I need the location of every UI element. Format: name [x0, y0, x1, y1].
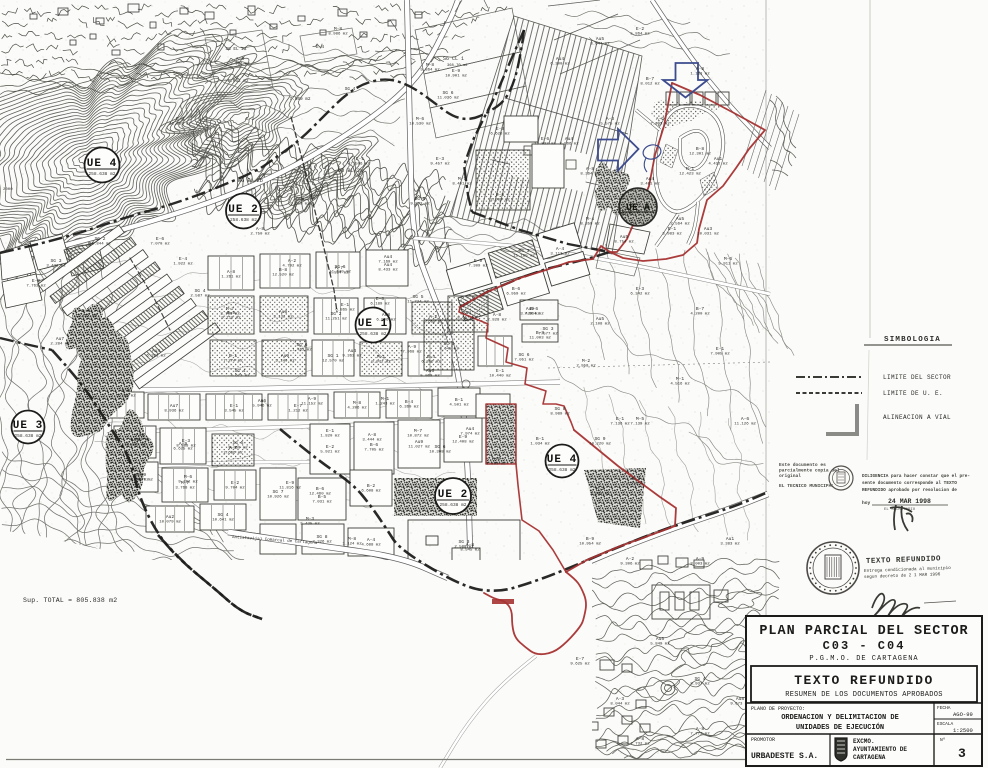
svg-text:7.596 m2: 7.596 m2: [350, 163, 370, 167]
svg-text:SG 6: SG 6: [518, 352, 529, 358]
svg-text:Au4: Au4: [348, 348, 357, 354]
svg-text:258.638 m2: 258.638 m2: [14, 433, 41, 439]
svg-text:8.754 m2: 8.754 m2: [614, 241, 634, 245]
svg-text:E-7: E-7: [576, 656, 585, 662]
svg-text:9.910 m2: 9.910 m2: [290, 203, 310, 207]
svg-text:3.423 m2: 3.423 m2: [46, 265, 66, 269]
svg-text:SG 4: SG 4: [194, 288, 205, 294]
svg-text:11.724 m2: 11.724 m2: [407, 301, 429, 305]
svg-text:1.124 m2: 1.124 m2: [342, 543, 362, 547]
svg-text:SG 5: SG 5: [443, 341, 454, 347]
svg-text:6.959 m2: 6.959 m2: [506, 293, 526, 297]
svg-text:6.342 m2: 6.342 m2: [630, 293, 650, 297]
svg-text:258.638 m2: 258.638 m2: [88, 171, 115, 177]
svg-text:M-5: M-5: [636, 416, 645, 422]
svg-text:2.588 m2: 2.588 m2: [454, 546, 474, 550]
svg-text:10.031 m2: 10.031 m2: [697, 233, 719, 237]
svg-text:Sup. TOTAL = 805.838 m2: Sup. TOTAL = 805.838 m2: [23, 597, 117, 604]
svg-text:FECHA: FECHA: [937, 705, 951, 711]
svg-text:3.383 m2: 3.383 m2: [720, 543, 740, 547]
svg-text:11.152 m2: 11.152 m2: [301, 403, 323, 407]
svg-text:E-2: E-2: [32, 278, 41, 284]
svg-text:M-7: M-7: [414, 428, 423, 434]
svg-text:B-9: B-9: [227, 310, 236, 316]
svg-text:SG 3: SG 3: [518, 248, 529, 254]
svg-text:11.251 m2: 11.251 m2: [325, 318, 347, 322]
svg-text:6.360 m2: 6.360 m2: [399, 406, 419, 410]
svg-text:E-1: E-1: [230, 403, 239, 409]
svg-text:E-1: E-1: [356, 156, 365, 162]
svg-text:A-2: A-2: [288, 258, 297, 264]
svg-text:Au9: Au9: [281, 353, 290, 359]
svg-text:E-1: E-1: [496, 368, 505, 374]
svg-text:SG 4: SG 4: [345, 87, 356, 92]
svg-text:7.309 m2: 7.309 m2: [468, 265, 488, 269]
svg-text:2.564 m2: 2.564 m2: [670, 223, 690, 227]
svg-text:SG EL 2a: SG EL 2a: [225, 47, 246, 52]
svg-text:9.704 m2: 9.704 m2: [225, 487, 245, 491]
svg-text:368.70 m2: 368.70 m2: [447, 64, 468, 68]
svg-text:3.545 m2: 3.545 m2: [224, 410, 244, 414]
svg-text:A-5: A-5: [135, 472, 144, 478]
svg-text:SG 6: SG 6: [296, 342, 307, 348]
svg-text:SG 4: SG 4: [234, 368, 245, 374]
svg-text:258.638 m2: 258.638 m2: [439, 502, 466, 508]
svg-text:Nº: Nº: [940, 737, 946, 743]
svg-text:URBADESTE S.A.: URBADESTE S.A.: [751, 752, 818, 761]
svg-text:A-4: A-4: [556, 246, 565, 252]
svg-text:B-2: B-2: [367, 483, 376, 489]
svg-text:4.206 m2: 4.206 m2: [347, 407, 367, 411]
svg-text:M-6: M-6: [416, 116, 425, 122]
svg-text:Au7: Au7: [56, 336, 65, 342]
svg-text:10.220 m2: 10.220 m2: [589, 443, 611, 447]
svg-text:Au4: Au4: [152, 348, 161, 354]
svg-text:Au8: Au8: [279, 309, 288, 315]
svg-text:SG 6: SG 6: [434, 444, 445, 450]
svg-text:12.301 m2: 12.301 m2: [689, 153, 711, 157]
svg-text:11.162 m2: 11.162 m2: [75, 315, 97, 319]
svg-text:6.628 m2: 6.628 m2: [490, 133, 510, 137]
svg-text:4.200 m2: 4.200 m2: [690, 313, 710, 317]
svg-text:PROMOTOR: PROMOTOR: [751, 737, 775, 743]
svg-text:UE 2: UE 2: [438, 489, 468, 501]
svg-text:B-8: B-8: [696, 146, 705, 152]
svg-text:8.359 m2: 8.359 m2: [580, 223, 600, 227]
svg-text:7.051 m2: 7.051 m2: [514, 359, 534, 363]
svg-text:Este documento es: Este documento es: [779, 462, 826, 468]
svg-text:SG 3: SG 3: [458, 539, 469, 545]
svg-text:E-1: E-1: [716, 346, 725, 352]
svg-text:1.243 m2: 1.243 m2: [375, 403, 395, 407]
svg-text:Au4: Au4: [384, 254, 393, 260]
svg-text:UE 2: UE 2: [228, 204, 258, 216]
svg-text:E-4: E-4: [316, 45, 324, 50]
svg-text:Au4: Au4: [565, 136, 574, 142]
svg-text:2.958 m2: 2.958 m2: [576, 365, 596, 369]
svg-text:M-8: M-8: [334, 26, 343, 32]
svg-text:A-8: A-8: [368, 432, 377, 438]
svg-text:A-8: A-8: [492, 456, 501, 462]
svg-text:Au7: Au7: [170, 403, 179, 409]
svg-text:12.520 m2: 12.520 m2: [272, 274, 294, 278]
svg-text:7.093 m2: 7.093 m2: [650, 123, 670, 127]
svg-text:E-4: E-4: [179, 256, 188, 262]
svg-text:3.481 m2: 3.481 m2: [640, 183, 660, 187]
svg-text:sente documento corresponde al: sente documento corresponde al TEXTO: [862, 481, 957, 486]
svg-text:3.645 m2: 3.645 m2: [439, 348, 459, 352]
svg-text:7.274 m2: 7.274 m2: [223, 360, 243, 364]
svg-text:10.641 m2: 10.641 m2: [212, 519, 234, 523]
svg-text:2.284 m2: 2.284 m2: [50, 343, 70, 347]
svg-text:8.983 m2: 8.983 m2: [662, 233, 682, 237]
svg-text:9.118 m2: 9.118 m2: [221, 317, 241, 321]
svg-text:6.366 m2: 6.366 m2: [421, 361, 441, 365]
svg-text:Au5: Au5: [596, 316, 605, 322]
svg-text:M-2: M-2: [596, 486, 605, 492]
svg-text:4.501 m2: 4.501 m2: [449, 404, 469, 408]
svg-text:B-8: B-8: [536, 330, 545, 336]
svg-text:hoy: hoy: [862, 500, 871, 506]
svg-text:8.936 m2: 8.936 m2: [164, 410, 184, 414]
svg-text:5.068 m2: 5.068 m2: [420, 375, 440, 379]
svg-text:5.849 m2: 5.849 m2: [650, 643, 670, 647]
svg-text:1.034 m2: 1.034 m2: [530, 443, 550, 447]
svg-text:E-2: E-2: [231, 480, 240, 486]
svg-text:24 MAR 1998: 24 MAR 1998: [888, 498, 931, 505]
svg-text:10.954 m2: 10.954 m2: [579, 543, 601, 547]
svg-text:Au6: Au6: [258, 398, 267, 404]
svg-text:B-6: B-6: [316, 486, 325, 492]
svg-text:E-7: E-7: [294, 403, 303, 409]
svg-text:5.972 m2: 5.972 m2: [371, 361, 391, 365]
svg-text:3: 3: [958, 746, 966, 761]
svg-text:2.703 m2: 2.703 m2: [614, 213, 634, 217]
svg-text:B-6: B-6: [530, 306, 539, 312]
svg-text:A-8: A-8: [636, 736, 645, 742]
svg-text:7.139 m2: 7.139 m2: [630, 423, 650, 427]
svg-text:6.323 m2: 6.323 m2: [146, 355, 166, 359]
svg-text:8.044 m2: 8.044 m2: [610, 703, 630, 707]
svg-text:B-5: B-5: [318, 494, 327, 500]
svg-text:B-1: B-1: [536, 436, 545, 442]
svg-text:9.306 m2: 9.306 m2: [620, 563, 640, 567]
svg-text:Au1: Au1: [131, 437, 140, 443]
svg-text:6.189 m2: 6.189 m2: [370, 303, 390, 307]
svg-text:11.844 m2: 11.844 m2: [89, 243, 111, 247]
svg-text:SG 2: SG 2: [94, 236, 105, 242]
svg-text:2.244 m2: 2.244 m2: [129, 479, 149, 483]
svg-text:7.070 m2: 7.070 m2: [150, 243, 170, 247]
svg-text:Au2: Au2: [166, 514, 175, 520]
svg-text:M-7: M-7: [458, 176, 467, 182]
svg-text:Au4: Au4: [384, 262, 393, 268]
svg-text:B-4: B-4: [405, 399, 414, 405]
svg-text:M-8: M-8: [426, 62, 435, 68]
svg-text:A-9: A-9: [308, 396, 317, 402]
svg-text:2.554 m2: 2.554 m2: [329, 272, 349, 276]
svg-text:5.946 m2: 5.946 m2: [252, 405, 272, 409]
svg-text:RESUMEN DE LOS DOCUMENTOS APRO: RESUMEN DE LOS DOCUMENTOS APROBADOS: [785, 691, 943, 699]
svg-text:5.425 m2: 5.425 m2: [300, 523, 320, 527]
svg-text:9.973 m2: 9.973 m2: [410, 203, 430, 207]
svg-text:3.967 m2: 3.967 m2: [230, 63, 250, 67]
svg-text:Au8: Au8: [382, 312, 391, 318]
svg-text:8.012 m2: 8.012 m2: [640, 83, 660, 87]
svg-text:11.126 m2: 11.126 m2: [734, 423, 756, 427]
svg-text:SG 7: SG 7: [272, 489, 283, 495]
svg-text:Au4: Au4: [466, 426, 475, 432]
svg-text:REFUNDIDO aprobado por resoluc: REFUNDIDO aprobado por resolucion de: [862, 488, 957, 493]
svg-text:8.989 m2: 8.989 m2: [550, 413, 570, 417]
svg-text:11.185 m2: 11.185 m2: [513, 255, 535, 259]
svg-text:7.763 m2: 7.763 m2: [26, 285, 46, 289]
svg-text:SG 2: SG 2: [330, 311, 341, 317]
svg-text:2.732 m2: 2.732 m2: [630, 743, 650, 747]
svg-text:EL TECNICO MUNICIPAL: EL TECNICO MUNICIPAL: [779, 483, 834, 489]
svg-text:11.003 m2: 11.003 m2: [529, 337, 551, 341]
svg-text:2.566 m2: 2.566 m2: [559, 143, 579, 147]
svg-text:AGO-99: AGO-99: [953, 711, 973, 718]
svg-text:2.909 m2: 2.909 m2: [490, 199, 510, 203]
svg-text:5.669 m2: 5.669 m2: [423, 321, 443, 325]
svg-text:3.140 m2: 3.140 m2: [275, 360, 295, 364]
svg-text:EXCMO.: EXCMO.: [853, 738, 875, 745]
svg-text:6.300 m2: 6.300 m2: [550, 63, 570, 67]
svg-text:ALINEACION A VIAL: ALINEACION A VIAL: [883, 414, 951, 421]
svg-text:10.020 m2: 10.020 m2: [124, 444, 146, 448]
svg-text:SG 5: SG 5: [412, 294, 423, 300]
svg-text:8.657 m2: 8.657 m2: [457, 317, 477, 321]
svg-text:3.113 m2: 3.113 m2: [550, 253, 570, 257]
svg-text:Au4: Au4: [556, 56, 565, 62]
svg-text:A-8: A-8: [696, 66, 705, 72]
svg-text:3.444 m2: 3.444 m2: [362, 439, 382, 443]
svg-text:SG 6: SG 6: [442, 90, 453, 96]
svg-text:A-2: A-2: [626, 556, 635, 562]
svg-text:SG 4: SG 4: [217, 512, 228, 518]
svg-text:A-6: A-6: [620, 206, 629, 212]
svg-text:P.G.M.O. DE CARTAGENA: P.G.M.O. DE CARTAGENA: [809, 655, 918, 663]
svg-text:8.644 m2: 8.644 m2: [590, 43, 610, 47]
svg-text:E-8: E-8: [496, 192, 505, 198]
svg-text:Au8: Au8: [736, 696, 745, 702]
svg-text:C03 - C04: C03 - C04: [823, 639, 906, 653]
svg-text:6.625 m2: 6.625 m2: [173, 448, 193, 452]
svg-text:B-7: B-7: [696, 306, 705, 312]
svg-text:4.688 m2: 4.688 m2: [361, 544, 381, 548]
svg-text:A-8: A-8: [493, 312, 502, 318]
svg-text:E-3: E-3: [436, 156, 445, 162]
svg-text:A-7: A-7: [335, 265, 344, 271]
svg-text:A-9: A-9: [696, 556, 705, 562]
svg-text:8.364 m2: 8.364 m2: [580, 173, 600, 177]
svg-text:E-8: E-8: [296, 196, 305, 202]
svg-text:E-1: E-1: [341, 302, 350, 308]
svg-text:11.036 m2: 11.036 m2: [437, 97, 459, 101]
svg-text:12.832 m2: 12.832 m2: [534, 143, 556, 147]
svg-text:Au5: Au5: [656, 636, 665, 642]
svg-text:1.922 m2: 1.922 m2: [173, 263, 193, 267]
svg-text:B-7: B-7: [646, 76, 655, 82]
svg-text:7.968 m2: 7.968 m2: [402, 351, 422, 355]
svg-text:UNIDADES DE EJECUCIÓN: UNIDADES DE EJECUCIÓN: [796, 722, 884, 732]
svg-text:Au9: Au9: [415, 439, 424, 445]
svg-text:Au5: Au5: [676, 216, 685, 222]
svg-text:2.333 m2: 2.333 m2: [590, 493, 610, 497]
svg-text:A-2: A-2: [656, 116, 665, 122]
svg-text:5.864 m2: 5.864 m2: [420, 69, 440, 73]
svg-text:7.031 m2: 7.031 m2: [312, 501, 332, 505]
svg-text:A-8: A-8: [256, 226, 265, 232]
svg-text:7.964 m2: 7.964 m2: [524, 313, 544, 317]
svg-text:E-2: E-2: [636, 26, 645, 32]
svg-text:E-8: E-8: [376, 296, 385, 302]
svg-text:10.079 m2: 10.079 m2: [159, 521, 181, 525]
svg-text:1.212 m2: 1.212 m2: [288, 410, 308, 414]
svg-text:4.432 m2: 4.432 m2: [708, 163, 728, 167]
svg-text:9.625 m2: 9.625 m2: [570, 663, 590, 667]
svg-text:7.772 m2: 7.772 m2: [690, 733, 710, 737]
svg-text:M-1: M-1: [686, 166, 695, 172]
svg-text:E-1: E-1: [668, 226, 677, 232]
svg-text:2.750 m2: 2.750 m2: [250, 233, 270, 237]
svg-text:8.401 m2: 8.401 m2: [452, 183, 472, 187]
svg-text:E-3: E-3: [636, 286, 645, 292]
svg-text:12.408 m2: 12.408 m2: [452, 441, 474, 445]
svg-text:AYUNTAMIENTO DE: AYUNTAMIENTO DE: [853, 746, 907, 753]
svg-text:258.638 m2: 258.638 m2: [548, 467, 575, 473]
svg-text:3.768 m2: 3.768 m2: [175, 487, 195, 491]
svg-text:A-6: A-6: [741, 416, 750, 422]
svg-text:Au6: Au6: [426, 368, 435, 374]
svg-text:B-3: B-3: [632, 476, 641, 482]
svg-text:A-8: A-8: [696, 726, 705, 732]
svg-text:E-2: E-2: [122, 388, 131, 394]
svg-text:1:2500: 1:2500: [953, 727, 973, 734]
svg-text:A-9: A-9: [408, 344, 417, 350]
svg-text:E-1: E-1: [326, 428, 335, 434]
svg-text:B-4: B-4: [176, 116, 185, 122]
svg-text:M-2: M-2: [582, 358, 591, 364]
svg-text:Au1: Au1: [714, 156, 723, 162]
svg-text:1.820 m2: 1.820 m2: [320, 435, 340, 439]
svg-text:258.638 m2: 258.638 m2: [359, 331, 386, 337]
svg-text:B-6: B-6: [370, 442, 379, 448]
svg-text:UE 3: UE 3: [13, 420, 43, 432]
svg-text:ESCALA: ESCALA: [937, 721, 954, 727]
svg-text:11.027 m2: 11.027 m2: [408, 446, 430, 450]
svg-text:E-9: E-9: [474, 258, 483, 264]
svg-text:SG 3: SG 3: [542, 326, 553, 332]
svg-text:B-8: B-8: [279, 267, 288, 273]
svg-text:7.136 m2: 7.136 m2: [610, 423, 630, 427]
svg-text:A-9: A-9: [179, 441, 188, 447]
svg-text:2.587 m2: 2.587 m2: [190, 295, 210, 299]
svg-text:7.705 m2: 7.705 m2: [364, 449, 384, 453]
svg-text:2.686 m2: 2.686 m2: [223, 452, 243, 456]
svg-text:E-2: E-2: [326, 444, 335, 450]
svg-text:M-6: M-6: [724, 256, 733, 262]
svg-text:A-3: A-3: [616, 696, 625, 702]
svg-text:5.911 m2: 5.911 m2: [718, 263, 738, 267]
svg-text:7.905 m2: 7.905 m2: [710, 353, 730, 357]
svg-text:Au1: Au1: [726, 536, 735, 542]
svg-text:LIMITE DE U. E.: LIMITE DE U. E.: [883, 390, 943, 397]
svg-text:M-6: M-6: [184, 474, 193, 480]
svg-text:10.440 m2: 10.440 m2: [489, 375, 511, 379]
svg-text:10.872 m2: 10.872 m2: [407, 435, 429, 439]
svg-text:PLAN PARCIAL DEL SECTOR: PLAN PARCIAL DEL SECTOR: [759, 624, 968, 639]
svg-text:ORDENACION Y DELIMITACION DE: ORDENACION Y DELIMITACION DE: [781, 714, 899, 722]
svg-text:8.986 m2: 8.986 m2: [328, 33, 348, 37]
svg-text:B-9: B-9: [586, 536, 595, 542]
svg-text:B-1: B-1: [455, 397, 464, 403]
svg-text:SG 1: SG 1: [327, 353, 338, 359]
svg-text:S6 CL 1: S6 CL 1: [443, 56, 464, 62]
svg-text:PLANO DE PROYECTO:: PLANO DE PROYECTO:: [751, 706, 805, 712]
svg-text:M-1: M-1: [676, 376, 685, 382]
svg-text:3.132 m2: 3.132 m2: [273, 316, 293, 320]
svg-text:258.638 m2: 258.638 m2: [230, 217, 257, 223]
svg-text:1.163 m2: 1.163 m2: [690, 73, 710, 77]
svg-text:B-6: B-6: [82, 308, 91, 314]
svg-text:E-9: E-9: [496, 126, 505, 132]
svg-text:E-9: E-9: [286, 480, 295, 486]
svg-text:2.200 m2: 2.200 m2: [486, 463, 506, 467]
svg-text:8.003 m2: 8.003 m2: [690, 563, 710, 567]
svg-text:CARTAGENA: CARTAGENA: [853, 754, 886, 761]
svg-text:5.575 m2: 5.575 m2: [600, 123, 620, 127]
svg-text:M-3: M-3: [306, 516, 315, 522]
svg-text:10.308 m2: 10.308 m2: [429, 451, 451, 455]
svg-text:M-4: M-4: [586, 216, 595, 222]
svg-text:A-3: A-3: [606, 116, 615, 122]
svg-text:BG EL 2b: BG EL 2b: [238, 178, 263, 184]
svg-text:10.926 m2: 10.926 m2: [267, 496, 289, 500]
svg-text:6.608 m2: 6.608 m2: [361, 490, 381, 494]
svg-text:SIMBOLOGIA: SIMBOLOGIA: [884, 336, 941, 344]
svg-text:12.570 m2: 12.570 m2: [322, 360, 344, 364]
svg-text:Au5: Au5: [596, 36, 605, 42]
svg-text:9.457 m2: 9.457 m2: [430, 163, 450, 167]
svg-text:6.298 m2: 6.298 m2: [116, 395, 136, 399]
svg-text:4.516 m2: 4.516 m2: [670, 383, 690, 387]
svg-text:9.363 m2: 9.363 m2: [342, 355, 362, 359]
svg-text:2.108 m2: 2.108 m2: [590, 323, 610, 327]
svg-text:Au4: Au4: [463, 310, 472, 316]
svg-text:Au4: Au4: [646, 176, 655, 182]
svg-text:SG 8: SG 8: [316, 534, 327, 540]
svg-text:SG 3: SG 3: [50, 258, 61, 264]
svg-text:M-1: M-1: [381, 396, 390, 402]
svg-text:A-7: A-7: [229, 445, 238, 451]
svg-text:TEXTO REFUNDIDO: TEXTO REFUNDIDO: [794, 673, 934, 688]
svg-text:1.261 m2: 1.261 m2: [221, 276, 241, 280]
svg-text:5.921 m2: 5.921 m2: [320, 451, 340, 455]
svg-text:original: original: [779, 473, 801, 479]
svg-text:A-2: A-2: [429, 314, 438, 320]
svg-text:5.864 m2: 5.864 m2: [630, 33, 650, 37]
svg-text:4.672 m2: 4.672 m2: [230, 375, 250, 379]
svg-text:2.828 m2: 2.828 m2: [487, 319, 507, 323]
svg-text:A-6: A-6: [236, 56, 245, 62]
svg-text:SG 8: SG 8: [554, 406, 565, 412]
svg-text:8.937 m2: 8.937 m2: [690, 683, 710, 687]
svg-text:E-9: E-9: [459, 434, 468, 440]
svg-text:M-8: M-8: [348, 536, 357, 542]
svg-text:M-1: M-1: [377, 354, 386, 360]
